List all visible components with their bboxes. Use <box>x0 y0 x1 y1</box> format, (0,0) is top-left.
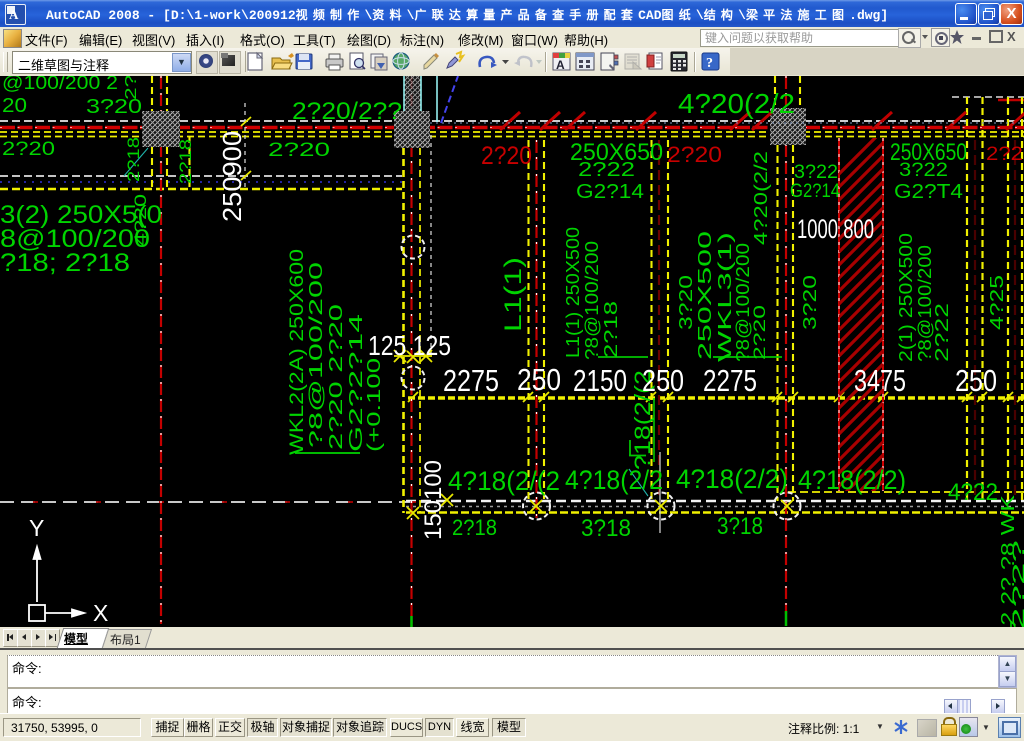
svg-text:2?20 2?20: 2?20 2?20 <box>326 304 346 450</box>
svg-text:G2?14: G2?14 <box>790 181 840 202</box>
svg-text:L1(1): L1(1) <box>500 257 527 332</box>
svg-text:WKL2(2A) 250X600: WKL2(2A) 250X600 <box>287 249 308 455</box>
svg-text:G2?T4: G2?T4 <box>894 181 963 203</box>
svg-text:2(1) 250X500: 2(1) 250X500 <box>896 233 916 362</box>
svg-text:250: 250 <box>642 363 684 398</box>
svg-text:2?22: 2?22 <box>578 159 635 181</box>
svg-text:?8@100/200: ?8@100/200 <box>306 262 326 448</box>
svg-text:2?20: 2?20 <box>2 139 55 160</box>
svg-text:2?22: 2?22 <box>932 303 952 362</box>
svg-text:125 125: 125 125 <box>368 330 451 361</box>
svg-text:2?20: 2?20 <box>750 305 769 360</box>
svg-text:2?2: 2?2 <box>986 144 1023 165</box>
svg-text:WKL3(1): WKL3(1) <box>715 232 735 362</box>
svg-text:3?22: 3?22 <box>794 162 838 183</box>
svg-text:G2?2?14: G2?2?14 <box>346 314 366 452</box>
svg-text:4?18(2/2): 4?18(2/2) <box>798 465 906 495</box>
svg-text:2?18: 2?18 <box>176 139 195 184</box>
svg-text:2?20: 2?20 <box>481 142 532 170</box>
svg-text:?: ? <box>706 56 713 71</box>
svg-text:4?20: 4?20 <box>131 194 150 246</box>
svg-text:2?18: 2?18 <box>124 137 143 182</box>
svg-text:2275: 2275 <box>443 363 499 398</box>
svg-text:3?18: 3?18 <box>581 515 631 542</box>
svg-text:3?20: 3?20 <box>800 275 820 330</box>
svg-text:20: 20 <box>2 95 27 117</box>
svg-text:4?20(2/2: 4?20(2/2 <box>678 88 795 119</box>
svg-text:G2?14: G2?14 <box>576 181 644 203</box>
svg-text:2?18: 2?18 <box>452 515 497 540</box>
svg-text:2?2?: 2?2? <box>1009 540 1024 627</box>
svg-text:@100/200 2: @100/200 2 <box>2 76 118 94</box>
svg-text:3?22: 3?22 <box>899 160 948 181</box>
svg-text:2?20: 2?20 <box>667 142 722 167</box>
svg-text:4?18(2/(2: 4?18(2/(2 <box>448 466 560 496</box>
svg-text:250: 250 <box>517 362 561 397</box>
svg-text:L1(1) 250X500: L1(1) 250X500 <box>563 227 583 358</box>
svg-text:2?18: 2?18 <box>601 301 621 358</box>
svg-text:2?20: 2?20 <box>268 140 330 161</box>
svg-text:?8@100/200: ?8@100/200 <box>582 241 602 360</box>
svg-text:3?20: 3?20 <box>676 275 696 330</box>
svg-text:150100: 150100 <box>420 460 447 540</box>
svg-text:250X500: 250X500 <box>695 231 715 360</box>
svg-text:250: 250 <box>955 363 997 398</box>
svg-text:Y: Y <box>29 515 44 541</box>
svg-text:?18; 2?18: ?18; 2?18 <box>0 249 130 277</box>
svg-text:250900: 250900 <box>217 131 247 222</box>
svg-text:2?2: 2?2 <box>123 76 140 100</box>
svg-text:3?18: 3?18 <box>717 513 763 540</box>
svg-text:1000 800: 1000 800 <box>797 214 874 244</box>
svg-text:4?22: 4?22 <box>948 479 998 506</box>
svg-text:4?18(2/2): 4?18(2/2) <box>676 464 788 494</box>
svg-text:4?20(2/2: 4?20(2/2 <box>751 151 771 245</box>
svg-text:4?25: 4?25 <box>987 275 1007 330</box>
svg-text:A: A <box>556 58 565 72</box>
svg-text:2?20/2??: 2?20/2?? <box>292 98 402 125</box>
svg-text:3475: 3475 <box>854 363 906 398</box>
svg-text:2150: 2150 <box>573 363 627 398</box>
svg-text:X: X <box>93 600 108 626</box>
svg-text:(+0.100: (+0.100 <box>364 358 384 452</box>
svg-text:2275: 2275 <box>703 363 757 398</box>
